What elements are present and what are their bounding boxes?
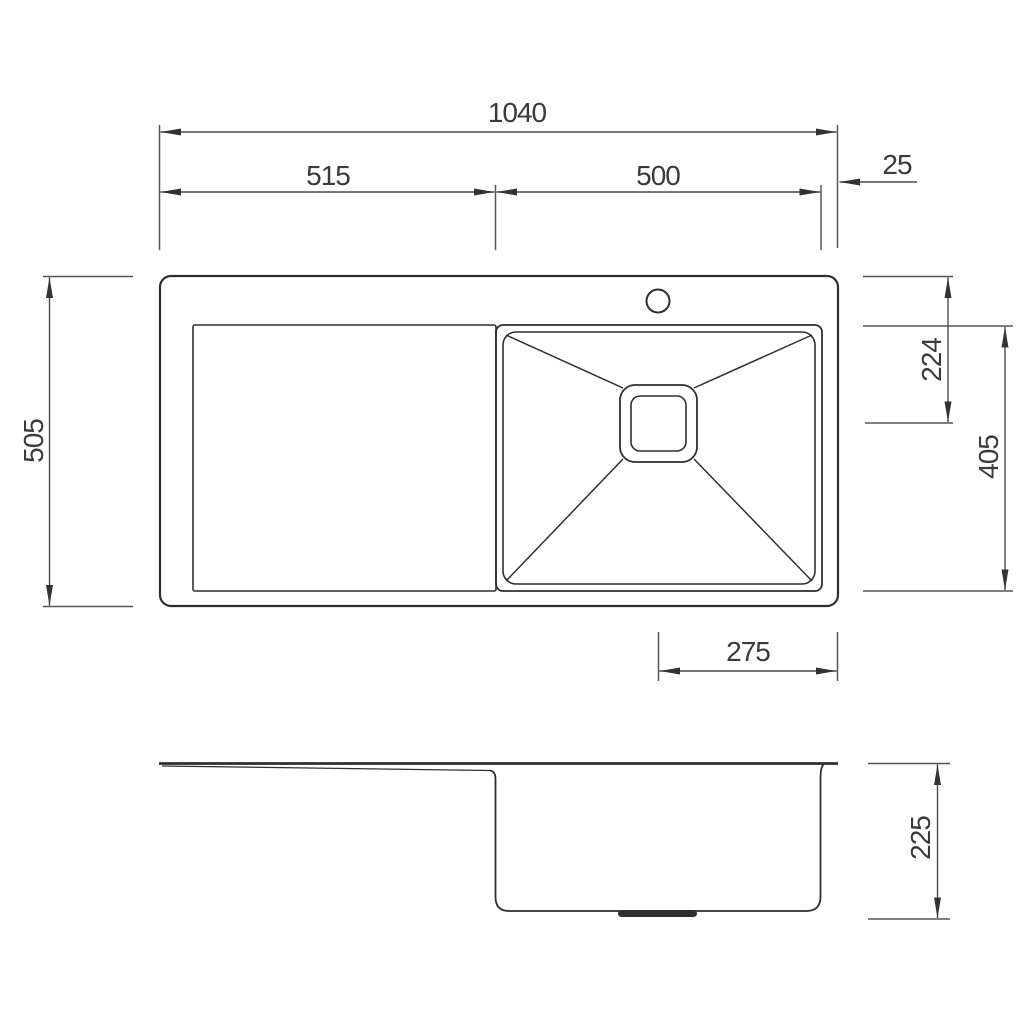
side-view bbox=[159, 764, 838, 918]
dimension-label: 25 bbox=[882, 149, 912, 180]
dimension-label: 515 bbox=[306, 160, 350, 191]
dimension-label: 500 bbox=[636, 160, 680, 191]
arrowhead bbox=[816, 668, 837, 675]
bowl-outer-rim bbox=[496, 325, 822, 591]
dimension-drain-to-right-edge: 275 bbox=[659, 632, 838, 681]
bowl-diagonal-bottom-right bbox=[694, 459, 812, 581]
arrowhead bbox=[1002, 327, 1009, 348]
arrowhead bbox=[46, 278, 53, 299]
dimension-bowl-depth: 225 bbox=[868, 764, 950, 920]
top-view bbox=[160, 276, 838, 606]
arrowhead bbox=[46, 585, 53, 606]
bowl-inner-rim bbox=[503, 332, 815, 584]
dimension-label: 1040 bbox=[488, 97, 547, 128]
bowl-diagonal-top-left bbox=[506, 335, 623, 388]
arrowhead bbox=[934, 765, 941, 786]
dimension-overall-depth: 505 bbox=[18, 277, 133, 607]
dimension-bowl-width: 500 bbox=[497, 160, 822, 250]
arrowhead bbox=[840, 179, 861, 186]
dimension-label: 405 bbox=[973, 435, 1004, 479]
dimension-label: 225 bbox=[905, 816, 936, 860]
dimension-drainboard-width: 515 bbox=[161, 160, 496, 250]
arrowhead bbox=[945, 278, 952, 299]
dimension-drain-from-back: 224 bbox=[863, 277, 953, 424]
arrowhead bbox=[816, 129, 837, 136]
technical-drawing-page: 1040 515 500 25 505 224 bbox=[0, 0, 1024, 1024]
arrowhead bbox=[660, 668, 681, 675]
dimension-label: 505 bbox=[18, 419, 49, 463]
dimension-overall-width: 1040 bbox=[160, 97, 838, 250]
arrowhead bbox=[800, 189, 821, 196]
bowl-profile bbox=[490, 765, 824, 912]
arrowhead bbox=[497, 189, 518, 196]
bowl-diagonal-top-right bbox=[694, 335, 812, 388]
faucet-hole bbox=[647, 290, 670, 313]
arrowhead bbox=[474, 189, 495, 196]
bowl-diagonal-bottom-left bbox=[506, 459, 623, 581]
dimension-right-rim: 25 bbox=[840, 149, 918, 186]
arrowhead bbox=[1002, 570, 1009, 591]
arrowhead bbox=[161, 129, 182, 136]
sink-technical-drawing: 1040 515 500 25 505 224 bbox=[0, 0, 1024, 1024]
drainboard-area bbox=[193, 325, 496, 591]
arrowhead bbox=[161, 189, 182, 196]
dimension-label: 275 bbox=[726, 636, 770, 667]
arrowhead bbox=[934, 898, 941, 919]
drain-boss bbox=[618, 910, 697, 917]
dimension-label: 224 bbox=[916, 338, 947, 382]
drain-inner bbox=[631, 396, 686, 451]
drainboard-slope-line bbox=[162, 766, 490, 771]
arrowhead bbox=[945, 402, 952, 423]
